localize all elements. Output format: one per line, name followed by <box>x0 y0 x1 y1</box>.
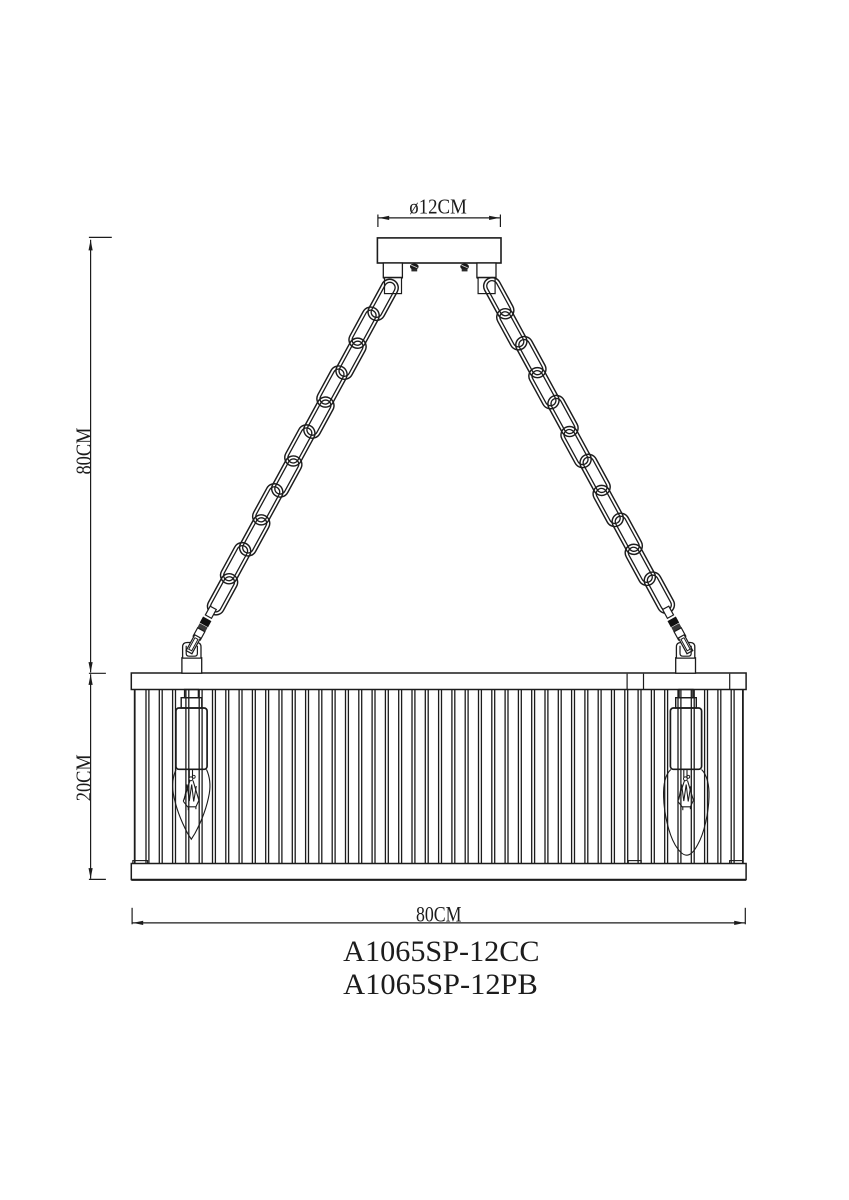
svg-text:A1065SP-12CC: A1065SP-12CC <box>343 935 539 968</box>
svg-text:20CM: 20CM <box>71 754 96 801</box>
svg-text:80CM: 80CM <box>416 902 462 927</box>
svg-text:80CM: 80CM <box>71 428 96 475</box>
svg-text:A1065SP-12PB: A1065SP-12PB <box>343 968 538 1001</box>
svg-text:ø12CM: ø12CM <box>409 194 467 218</box>
